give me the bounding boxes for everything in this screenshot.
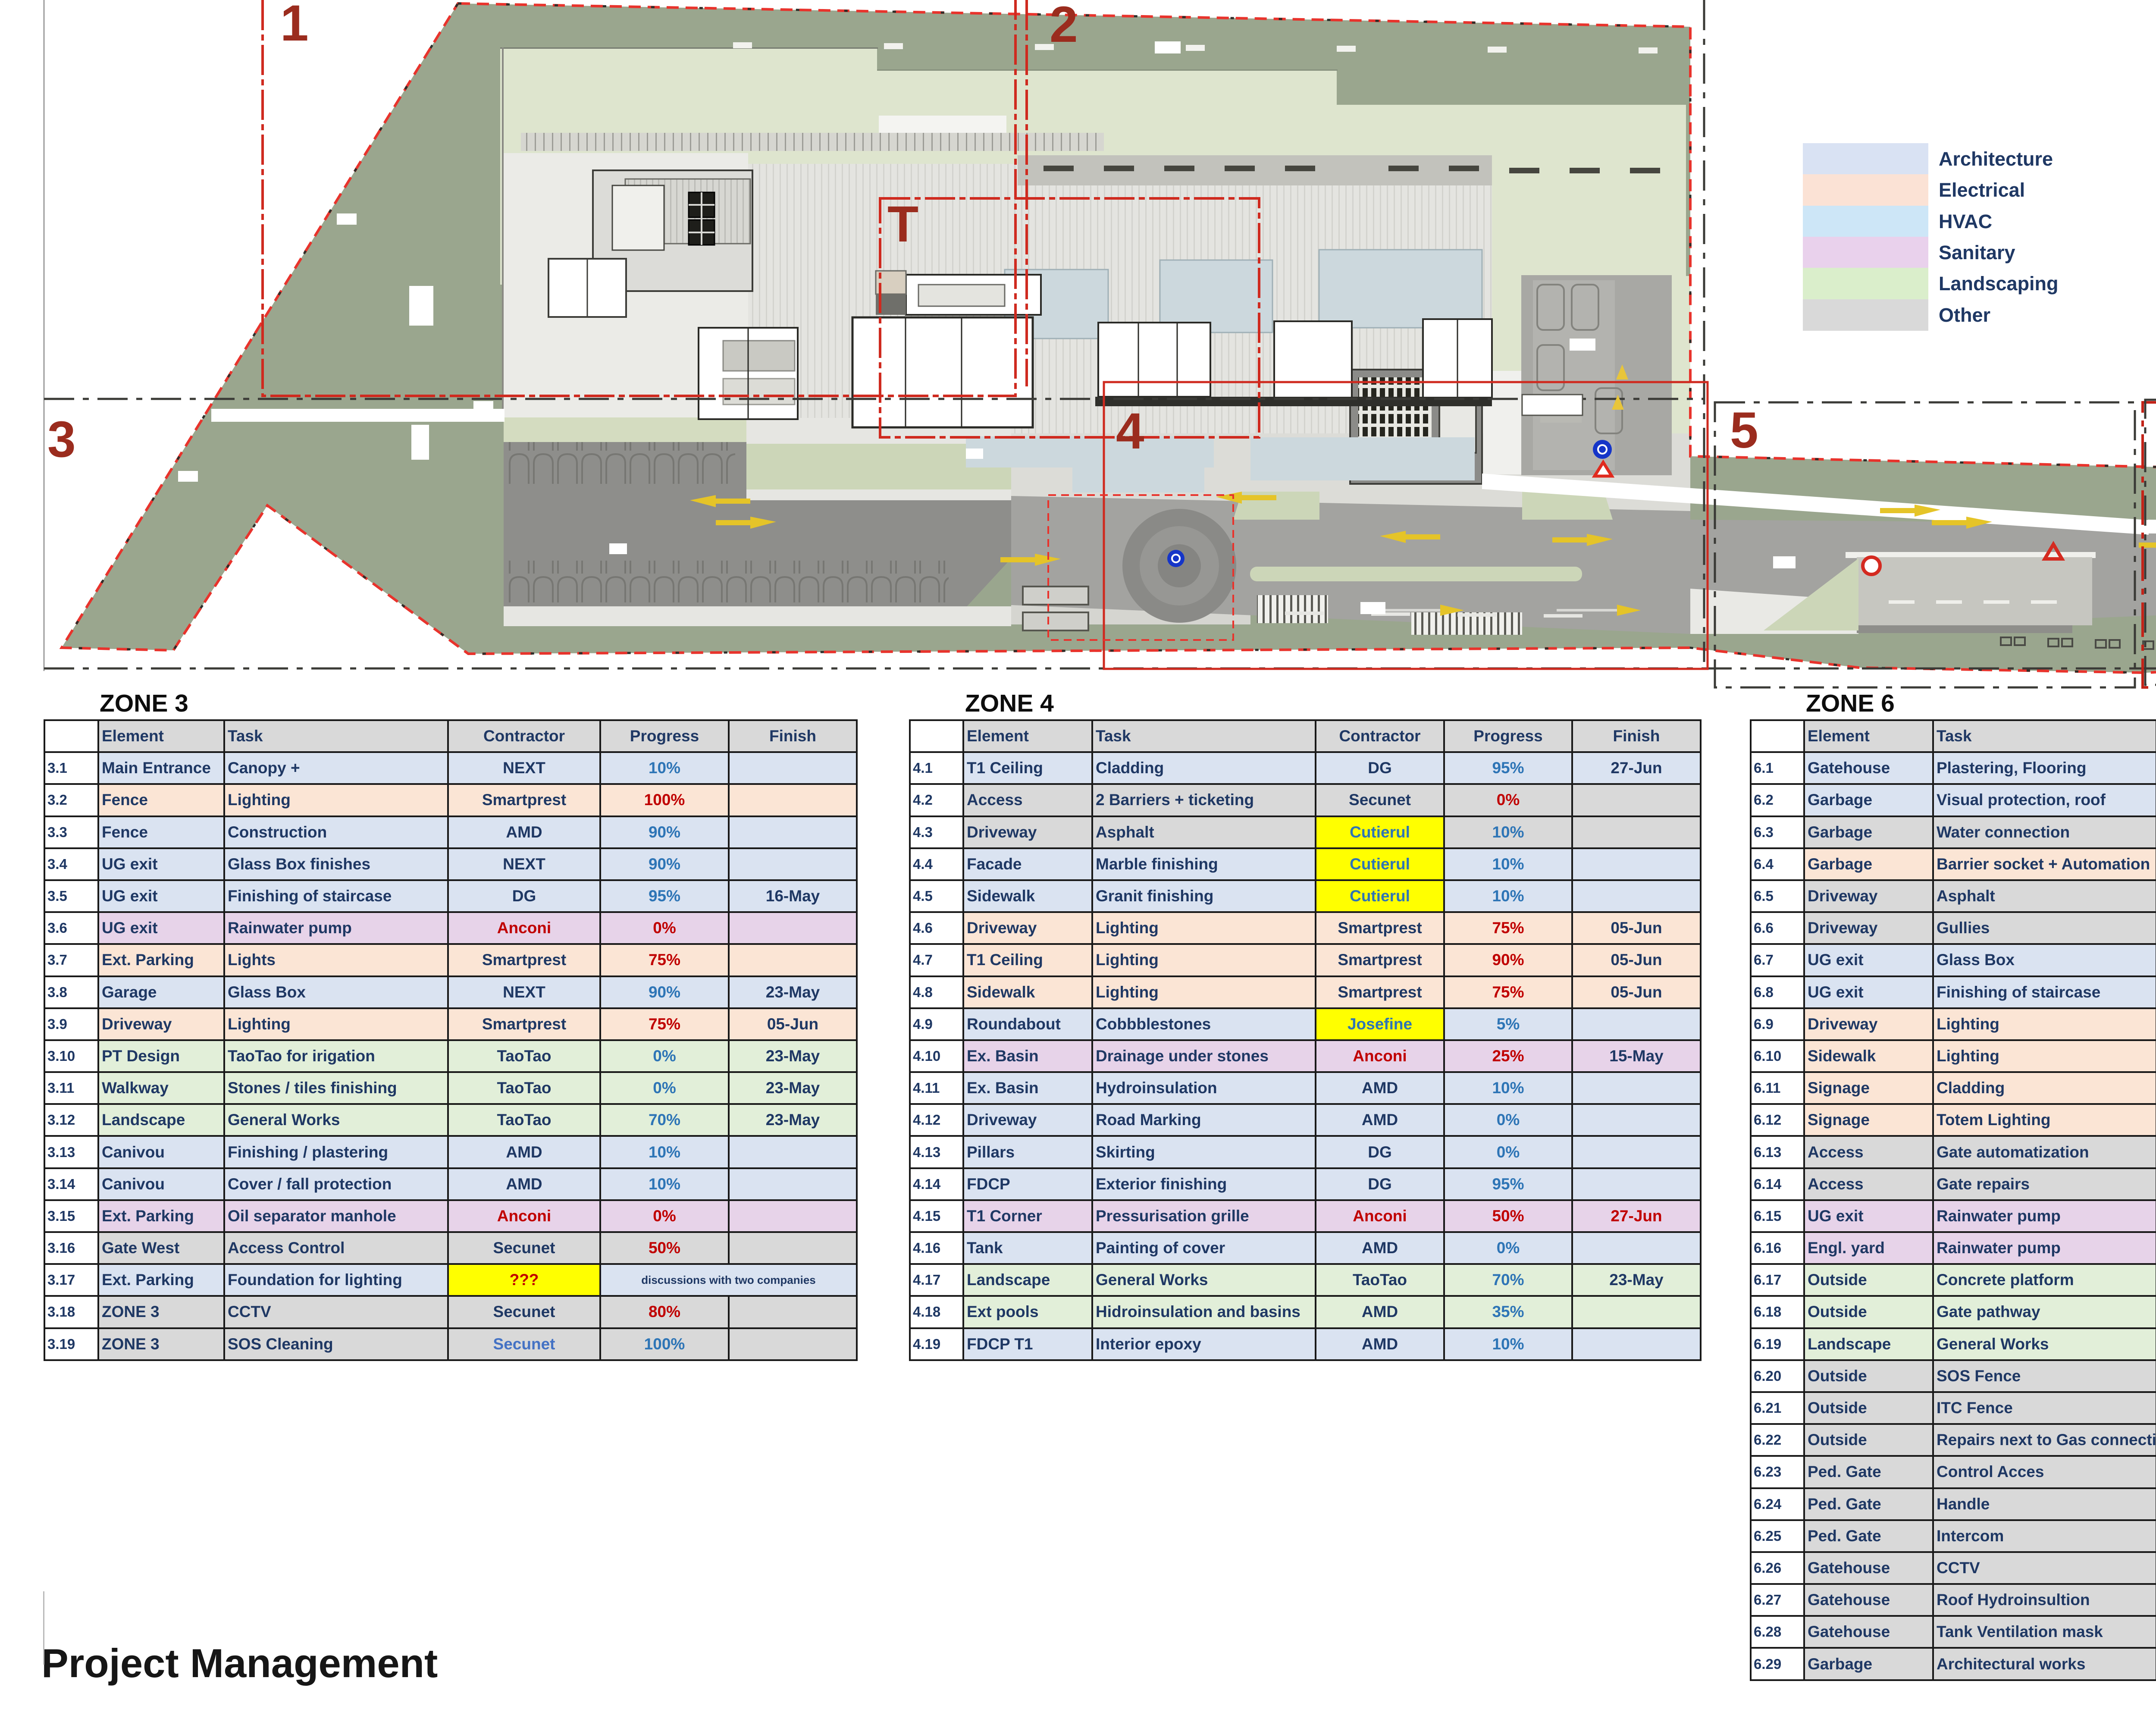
svg-text:1: 1 <box>280 0 309 52</box>
svg-text:4: 4 <box>1116 403 1144 460</box>
svg-text:3: 3 <box>47 411 76 468</box>
svg-text:T: T <box>887 196 918 253</box>
svg-text:2: 2 <box>1050 0 1078 53</box>
svg-text:5: 5 <box>1730 402 1758 459</box>
